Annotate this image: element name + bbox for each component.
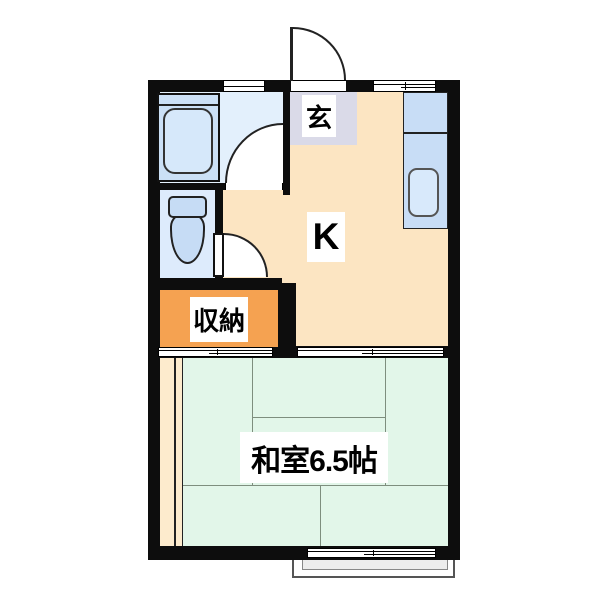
tatami-mat-line <box>183 485 448 486</box>
sliding-door-left <box>158 347 273 357</box>
toilet-door-leaf <box>213 233 224 277</box>
tatami-mat-line <box>320 485 321 546</box>
japanese-room-edge-strip <box>160 358 183 546</box>
wall-below-toilet <box>148 278 282 290</box>
kitchen-sink <box>408 168 439 217</box>
entrance-label: 玄 <box>302 95 336 137</box>
bathroom-window <box>223 80 265 92</box>
storage-label: 収納 <box>190 297 248 342</box>
floor-plan: 玄 K 収納 和室6.5帖 <box>0 0 600 600</box>
kitchen-counter-divider <box>403 132 448 134</box>
edge-strip-line <box>174 358 176 546</box>
kitchen-window <box>373 80 436 92</box>
bathroom-door-opening <box>225 183 283 190</box>
entrance-door-swing <box>293 27 346 80</box>
tatami-mat-line <box>252 417 386 418</box>
sliding-door-right <box>297 347 444 357</box>
toilet-tank <box>168 196 207 218</box>
japanese-room-window <box>307 548 436 558</box>
wall-storage-right <box>278 283 296 347</box>
wall-bathroom-entrance <box>283 92 290 195</box>
entrance-door-opening <box>291 80 346 92</box>
bathtub-basin <box>163 108 213 174</box>
japanese-room-label: 和室6.5帖 <box>240 432 388 483</box>
bathtub-ledge-line <box>159 104 218 106</box>
kitchen-label: K <box>307 212 345 262</box>
